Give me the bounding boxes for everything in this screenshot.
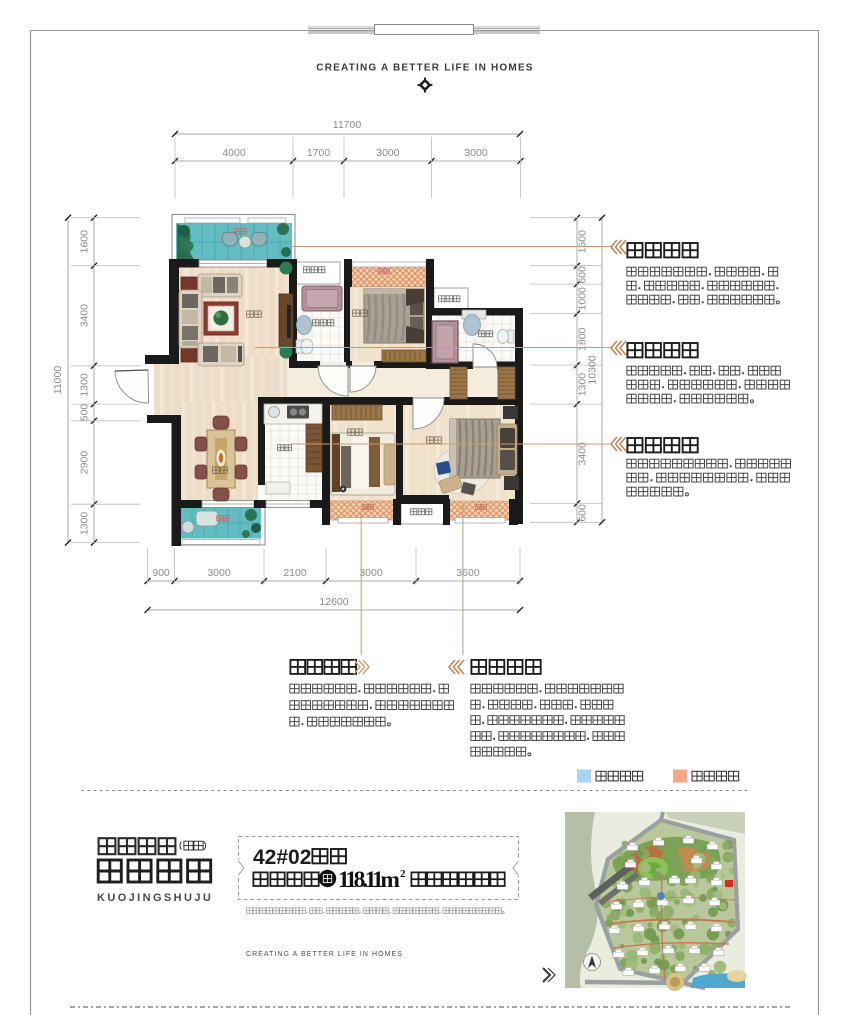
svg-text:1300: 1300	[79, 512, 91, 536]
svg-text:2: 2	[400, 868, 406, 880]
svg-text:11000: 11000	[52, 366, 64, 395]
svg-text:CREATING A BETTER LIFE IN HOME: CREATING A BETTER LIFE IN HOMES	[246, 951, 403, 958]
svg-text:2900: 2900	[79, 451, 91, 475]
svg-text:10300: 10300	[587, 355, 599, 384]
svg-text:1600: 1600	[577, 230, 589, 254]
svg-text:600: 600	[577, 504, 589, 522]
svg-text:2100: 2100	[283, 567, 307, 579]
svg-text:1000: 1000	[577, 287, 589, 311]
svg-text:600: 600	[577, 266, 589, 284]
svg-text:3000: 3000	[207, 567, 231, 579]
svg-text:500: 500	[79, 404, 91, 422]
svg-text:3600: 3600	[456, 567, 480, 579]
svg-text:KUOJINGSHUJU: KUOJINGSHUJU	[97, 892, 213, 904]
svg-text:11700: 11700	[333, 119, 362, 131]
svg-text:12600: 12600	[319, 596, 348, 608]
svg-text:3000: 3000	[359, 567, 383, 579]
svg-text:1300: 1300	[79, 373, 91, 397]
svg-text:4000: 4000	[222, 147, 246, 159]
svg-text:118.11m: 118.11m	[338, 867, 400, 893]
svg-text:CREATING A BETTER LIFE IN HOME: CREATING A BETTER LIFE IN HOMES	[316, 63, 533, 74]
svg-text:900: 900	[152, 567, 170, 579]
svg-text:1600: 1600	[79, 230, 91, 254]
svg-text:3400: 3400	[577, 442, 589, 466]
svg-text:42#02: 42#02	[253, 846, 311, 869]
svg-text:3000: 3000	[464, 147, 488, 159]
svg-text:3400: 3400	[79, 304, 91, 328]
svg-text:1700: 1700	[307, 147, 331, 159]
svg-text:3000: 3000	[376, 147, 400, 159]
